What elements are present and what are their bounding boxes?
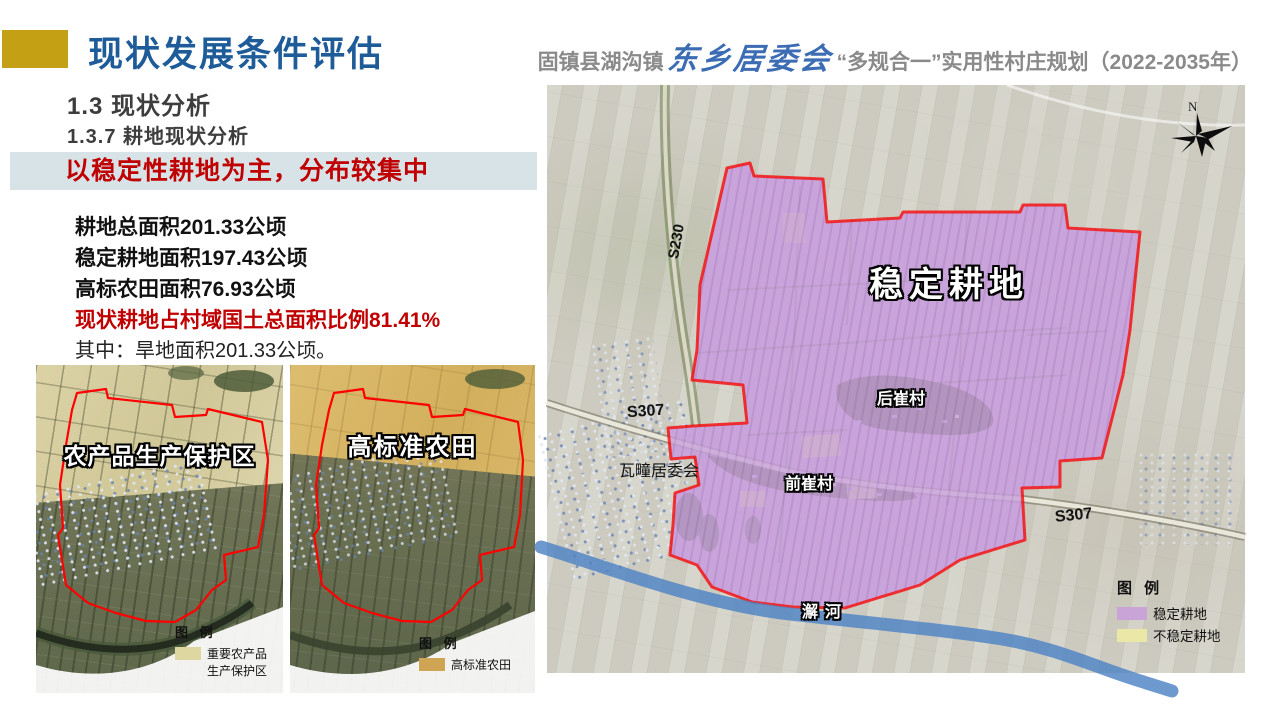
red-boundary: [314, 389, 523, 622]
village-label-back: 后崔村: [877, 385, 925, 409]
legend-label-unstable: 不稳定耕地: [1153, 625, 1221, 645]
stat-high-standard-farmland: 高标农田面积76.93公顷: [75, 274, 440, 305]
map-title-label: 高标准农田: [290, 427, 535, 462]
stat-total-farmland: 耕地总面积201.33公顷: [75, 212, 440, 243]
map-title-label: 农产品生产保护区: [36, 437, 283, 471]
stat-farmland-ratio: 现状耕地占村域国土总面积比例81.41%: [75, 305, 440, 336]
subtitle-suffix: “多规合一”实用性村庄规划（2022-2035年）: [837, 46, 1252, 76]
map-protection-zone: 农产品生产保护区 图 例 重要农产品 生产保护区: [36, 365, 283, 693]
river-label: 澥河: [802, 598, 848, 622]
road-label-s307-west: S307: [626, 402, 665, 423]
title-accent-block: [2, 30, 68, 68]
north-arrow-icon: [1171, 113, 1232, 157]
legend-title: 图 例: [419, 633, 529, 652]
town-label: 瓦疃居委会: [619, 457, 699, 481]
legend: 图 例 重要农产品 生产保护区: [175, 622, 281, 679]
subtitle-prefix: 固镇县湖沟镇: [538, 46, 664, 76]
slide: 现状发展条件评估 固镇县湖沟镇 东乡居委会 “多规合一”实用性村庄规划（2022…: [0, 0, 1280, 720]
subtitle-village-name: 东乡居委会: [665, 34, 835, 78]
page-title: 现状发展条件评估: [88, 26, 384, 77]
legend-swatch-stable: [1117, 607, 1147, 620]
stable-farmland-label: 稳定耕地: [869, 257, 1029, 306]
legend-title: 图 例: [1117, 577, 1221, 598]
stat-dry-land: 其中：旱地面积201.33公顷。: [75, 336, 440, 367]
document-subtitle: 固镇县湖沟镇 东乡居委会 “多规合一”实用性村庄规划（2022-2035年）: [538, 34, 1252, 78]
section-heading: 1.3 现状分析: [67, 86, 211, 121]
legend-label-line1: 重要农产品: [207, 645, 267, 662]
map-high-standard-farmland: 高标准农田 图 例 高标准农田: [290, 365, 535, 693]
legend-title: 图 例: [175, 622, 281, 641]
stat-stable-farmland: 稳定耕地面积197.43公顷: [75, 243, 440, 274]
legend-label-line2: 生产保护区: [207, 662, 267, 679]
legend: 图 例 稳定耕地 不稳定耕地: [1117, 577, 1221, 647]
statistics-block: 耕地总面积201.33公顷 稳定耕地面积197.43公顷 高标农田面积76.93…: [75, 212, 440, 367]
legend-swatch-protection: [175, 647, 201, 660]
map-stable-farmland: 稳定耕地 S230 S307 S307 瓦疃居委会 后崔村 前崔村 澥河 N 图…: [547, 85, 1245, 673]
legend-swatch-farmland: [419, 658, 445, 671]
village-label-front: 前崔村: [785, 470, 833, 494]
legend-label: 高标准农田: [451, 656, 511, 673]
north-label: N: [1188, 99, 1197, 115]
legend: 图 例 高标准农田: [419, 633, 529, 673]
subsection-heading: 1.3.7 耕地现状分析: [67, 120, 249, 149]
red-boundary: [58, 389, 268, 622]
key-finding-banner: 以稳定性耕地为主，分布较集中: [10, 152, 537, 190]
key-finding-text: 以稳定性耕地为主，分布较集中: [10, 152, 537, 190]
legend-label-stable: 稳定耕地: [1153, 603, 1207, 623]
legend-swatch-unstable: [1117, 629, 1147, 642]
